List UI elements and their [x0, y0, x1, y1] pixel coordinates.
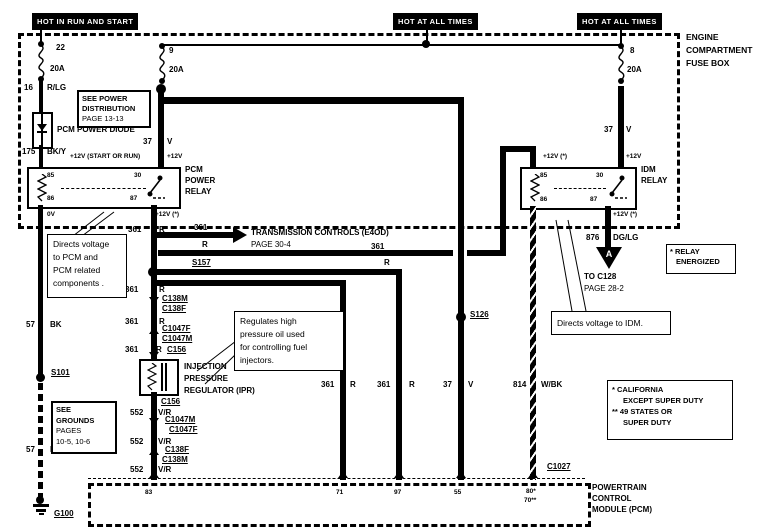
- pcm-pin-70: 70**: [524, 497, 536, 504]
- pcm-pin-80: 80*: [526, 488, 536, 495]
- pcm-pin-55: 55: [454, 489, 461, 496]
- pcm-pin55-fork: [456, 471, 466, 478]
- pcm-pin-83: 83: [145, 489, 152, 496]
- pcm-pin-71: 71: [336, 489, 343, 496]
- pcm-module-name-2: CONTROL: [592, 494, 632, 503]
- ipr-callout-line-1: Regulates high: [240, 315, 338, 328]
- pcm-callout-line-2: to PCM and: [53, 251, 121, 264]
- pcm-callout-line-3: PCM related: [53, 264, 121, 277]
- ipr-callout: Regulates high pressure oil used for con…: [234, 311, 344, 371]
- pcm-pin97-fork: [394, 471, 404, 478]
- pcm-pin80-fork: [528, 471, 538, 478]
- notes-box: * CALIFORNIA EXCEPT SUPER DUTY ** 49 STA…: [607, 380, 733, 440]
- notes-line-3: ** 49 STATES OR: [612, 406, 728, 417]
- notes-line-2: EXCEPT SUPER DUTY: [612, 395, 728, 406]
- ipr-callout-line-4: injectors.: [240, 354, 338, 367]
- pcm-callout-line-4: components .: [53, 277, 121, 290]
- pcm-relay-callout: Directs voltage to PCM and PCM related c…: [47, 234, 127, 298]
- ipr-callout-line-2: pressure oil used: [240, 328, 338, 341]
- notes-line-1: * CALIFORNIA: [612, 384, 728, 395]
- pcm-module-name-1: POWERTRAIN: [592, 483, 647, 492]
- pcm-pin83-fork: [149, 471, 159, 478]
- pcm-module-name-3: MODULE (PCM): [592, 505, 652, 514]
- idm-callout-text: Directs voltage to IDM.: [557, 315, 665, 331]
- pcm-callout-line-1: Directs voltage: [53, 238, 121, 251]
- ipr-callout-line-3: for controlling fuel: [240, 341, 338, 354]
- wiring-diagram: ENGINE COMPARTMENT FUSE BOX HOT IN RUN A…: [0, 0, 762, 530]
- idm-callout: Directs voltage to IDM.: [551, 311, 671, 335]
- pcm-pin71-fork: [338, 471, 348, 478]
- pcm-pin-97: 97: [394, 489, 401, 496]
- notes-line-4: SUPER DUTY: [612, 417, 728, 428]
- pcm-connector-line: [88, 478, 585, 479]
